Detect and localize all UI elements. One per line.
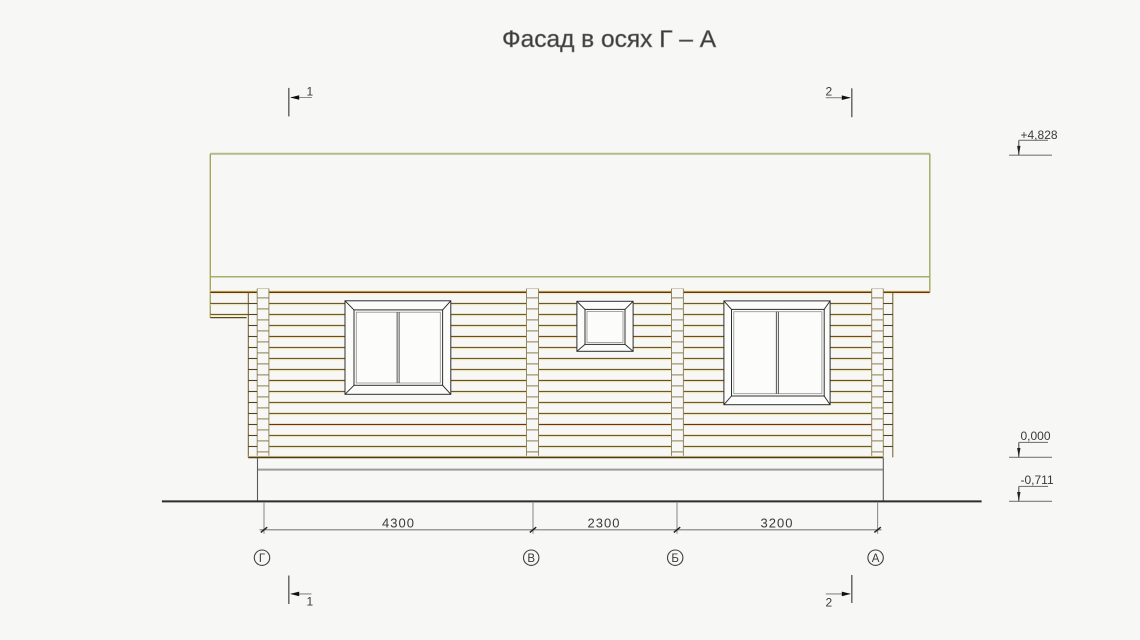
svg-text:3200: 3200 [761,515,794,530]
svg-text:+4,828: +4,828 [1021,128,1058,142]
svg-text:0,000: 0,000 [1021,429,1051,443]
svg-text:1: 1 [307,85,314,99]
svg-text:1: 1 [307,595,314,609]
svg-text:2: 2 [826,85,833,99]
svg-text:4300: 4300 [382,515,415,530]
svg-text:Фасад в осях Г – А: Фасад в осях Г – А [502,26,717,53]
svg-text:2300: 2300 [588,515,621,530]
svg-text:А: А [872,553,880,565]
svg-text:Б: Б [671,553,679,565]
svg-text:2: 2 [826,596,833,610]
svg-text:В: В [527,553,535,565]
svg-text:-0,711: -0,711 [1021,473,1054,487]
svg-text:Г: Г [259,553,266,565]
